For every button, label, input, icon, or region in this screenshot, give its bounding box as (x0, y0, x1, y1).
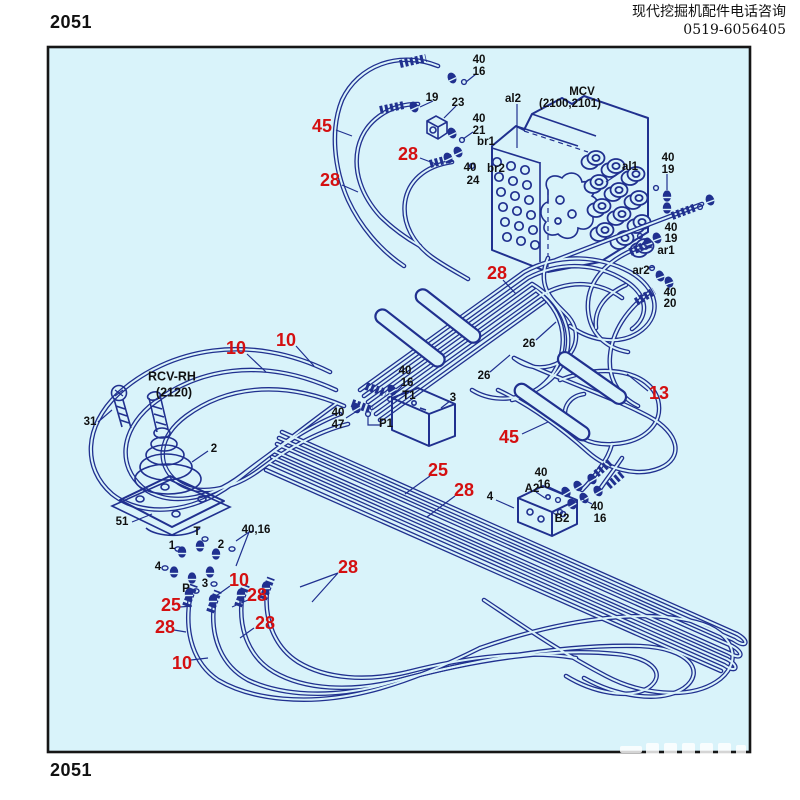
diagram-label: ar1 (657, 245, 675, 257)
diagram-label: 2 (211, 443, 217, 455)
diagram-label: 40 (535, 467, 548, 479)
diagram-label: 26 (478, 370, 491, 382)
diagram-label: al1 (622, 161, 639, 173)
diagram-label: (2120) (156, 385, 192, 399)
diagram-label: 28 (338, 557, 358, 577)
diagram-label: 28 (320, 170, 340, 190)
diagram-label: br1 (477, 136, 496, 148)
diagram-label: 10 (172, 653, 192, 673)
diagram-label: 16 (594, 513, 607, 525)
diagram-label: al2 (505, 93, 521, 105)
diagram-label: T (193, 526, 200, 538)
diagram-label: 45 (499, 427, 519, 447)
diagram-label: 16 (538, 479, 551, 491)
diagram-label: 45 (312, 116, 332, 136)
diagram-label: 24 (467, 175, 480, 187)
diagram-label: 16 (473, 66, 486, 78)
diagram-label: 28 (398, 144, 418, 164)
diagram-label: 25 (161, 595, 181, 615)
diagram-label: P1 (379, 418, 394, 430)
diagram-canvas: 4528282810101345252828102825282810401619… (0, 0, 800, 800)
diagram-label: 19 (662, 164, 675, 176)
diagram-label: MCV (569, 86, 595, 98)
diagram-label: 40 (473, 113, 486, 125)
diagram-label: 40 (473, 54, 486, 66)
diagram-label: 4 (487, 491, 494, 503)
diagram-label: ar2 (632, 265, 649, 277)
diagram-label: 20 (664, 298, 677, 310)
diagram-label: 1 (169, 540, 176, 552)
diagram-label: RCV-RH (148, 369, 196, 383)
diagram-label: 2 (218, 539, 224, 551)
diagram-label: 25 (428, 460, 448, 480)
diagram-label: 51 (116, 516, 129, 528)
diagram-label: 40 (332, 407, 345, 419)
diagram-label: 31 (84, 416, 97, 428)
diagram-label: 10 (276, 330, 296, 350)
diagram-label: (2100,2101) (539, 98, 601, 110)
diagram-label: 40 (662, 152, 675, 164)
diagram-label: 23 (452, 97, 465, 109)
diagram-label: 16 (401, 377, 414, 389)
diagram-label: 28 (247, 585, 267, 605)
diagram-label: 40 (399, 365, 412, 377)
diagram-label: br2 (487, 163, 505, 175)
diagram-label: 10 (226, 338, 246, 358)
diagram-label: 19 (426, 92, 439, 104)
diagram-label: T1 (402, 390, 416, 402)
diagram-label: 28 (155, 617, 175, 637)
diagram-label: 3 (202, 578, 208, 590)
diagram-label: 40,16 (242, 524, 271, 536)
diagram-label: 47 (332, 419, 345, 431)
diagram-label: 26 (523, 338, 536, 350)
diagram-label: 19 (665, 233, 678, 245)
diagram-label: B2 (555, 513, 570, 525)
diagram-label: 40 (591, 501, 604, 513)
diagram-label: P (182, 583, 190, 595)
diagram-label: 13 (649, 383, 669, 403)
diagram-label: 40 (464, 162, 477, 174)
diagram-label: 3 (450, 392, 456, 404)
diagram-label: 28 (487, 263, 507, 283)
diagram-label: 28 (454, 480, 474, 500)
diagram-label: 4 (155, 561, 162, 573)
diagram-label: 28 (255, 613, 275, 633)
